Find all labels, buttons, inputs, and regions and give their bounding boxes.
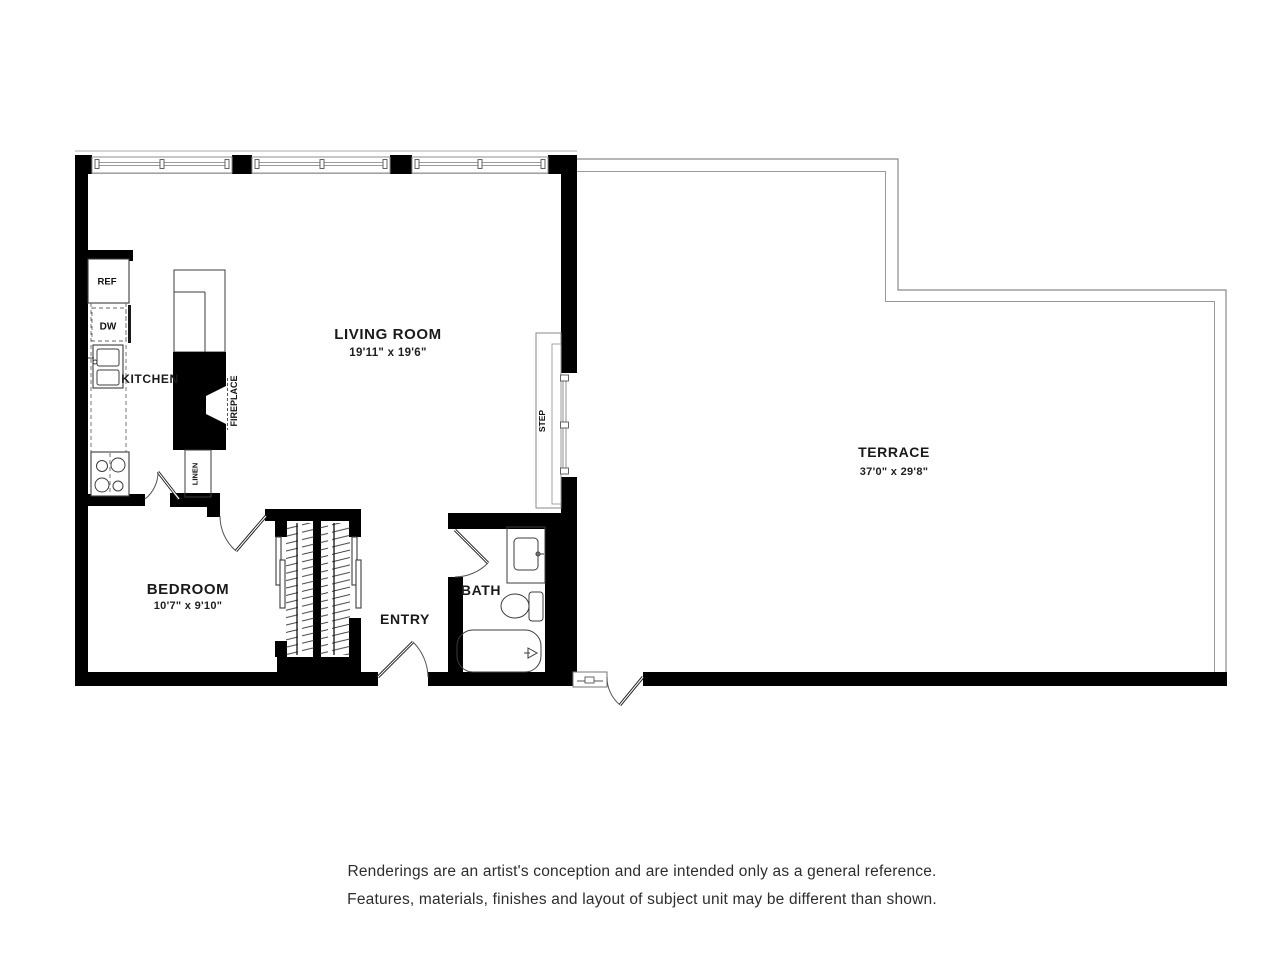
stove bbox=[91, 452, 129, 496]
label-refrigerator: REF bbox=[98, 277, 117, 288]
window-3 bbox=[412, 157, 548, 173]
closet-entry-wall bbox=[349, 618, 361, 677]
closet-divider bbox=[313, 521, 321, 657]
label-dishwasher: DW bbox=[100, 322, 117, 333]
toilet bbox=[501, 592, 543, 621]
wall-corner-ne bbox=[548, 155, 577, 174]
bathtub bbox=[457, 630, 541, 672]
kitchen-sink bbox=[88, 345, 123, 388]
wall-pier-2 bbox=[390, 155, 412, 174]
bath-vanity bbox=[507, 527, 545, 583]
label-bedroom: BEDROOM bbox=[147, 581, 230, 598]
window-band bbox=[92, 157, 548, 173]
window-2 bbox=[252, 157, 390, 173]
bath-fixtures bbox=[457, 527, 545, 672]
terrace-door bbox=[573, 672, 643, 705]
room-labels: LIVING ROOM 19'11" x 19'6" TERRACE 37'0"… bbox=[98, 277, 930, 628]
closet-slider-panel bbox=[280, 560, 285, 608]
walls bbox=[75, 151, 1227, 686]
disclaimer-line-1: Renderings are an artist's conception an… bbox=[347, 863, 936, 880]
closet-bottom-wall bbox=[277, 657, 349, 672]
closet-jamb-sw bbox=[275, 641, 287, 657]
label-bath: BATH bbox=[461, 582, 501, 598]
closet-jamb-ne bbox=[349, 521, 361, 537]
label-fireplace: FIREPLACE bbox=[229, 375, 239, 426]
label-entry: ENTRY bbox=[380, 611, 430, 627]
label-bedroom-dims: 10'7" x 9'10" bbox=[154, 600, 223, 612]
label-terrace-dims: 37'0" x 29'8" bbox=[860, 466, 929, 478]
closet-hangers-left bbox=[286, 523, 314, 655]
door-bedroom bbox=[220, 516, 266, 551]
window-1 bbox=[92, 157, 232, 173]
wall-bottom-mid bbox=[428, 672, 573, 686]
wall-left bbox=[75, 155, 88, 686]
step-inner bbox=[552, 344, 561, 504]
closet-hangers-right bbox=[320, 523, 350, 655]
fireplace-chimney bbox=[174, 270, 225, 352]
label-living-room-dims: 19'11" x 19'6" bbox=[349, 347, 427, 359]
bedroom-closets bbox=[265, 509, 361, 677]
label-step: STEP bbox=[537, 410, 547, 433]
wall-bottom-west bbox=[75, 672, 378, 686]
fireplace-group bbox=[173, 270, 228, 450]
door-unit-entry bbox=[378, 642, 428, 677]
label-terrace: TERRACE bbox=[858, 444, 930, 460]
door-bath bbox=[455, 530, 488, 577]
disclaimer-line-2: Features, materials, finishes and layout… bbox=[347, 891, 937, 908]
floorplan-canvas: LIVING ROOM 19'11" x 19'6" TERRACE 37'0"… bbox=[0, 0, 1280, 960]
wall-bath-right bbox=[545, 529, 577, 672]
wall-bottom-terrace bbox=[643, 672, 1227, 686]
wall-right-upper bbox=[561, 172, 577, 373]
label-kitchen: KITCHEN bbox=[121, 372, 179, 386]
terrace-outline bbox=[577, 159, 1226, 673]
counter-end-cap bbox=[128, 305, 131, 343]
label-linen: LINEN bbox=[191, 463, 200, 486]
wall-pier-1 bbox=[232, 155, 252, 174]
label-living-room: LIVING ROOM bbox=[334, 326, 441, 343]
closet-top-wall bbox=[265, 509, 361, 521]
closet-jamb-nw bbox=[275, 521, 287, 537]
wall-jamb-bedroom-door bbox=[207, 505, 220, 517]
floorplan-drawing: LIVING ROOM 19'11" x 19'6" TERRACE 37'0"… bbox=[0, 0, 1280, 960]
wall-corner-nw bbox=[75, 155, 92, 174]
closet-slider-panel bbox=[356, 560, 361, 608]
disclaimer: Renderings are an artist's conception an… bbox=[347, 863, 937, 908]
